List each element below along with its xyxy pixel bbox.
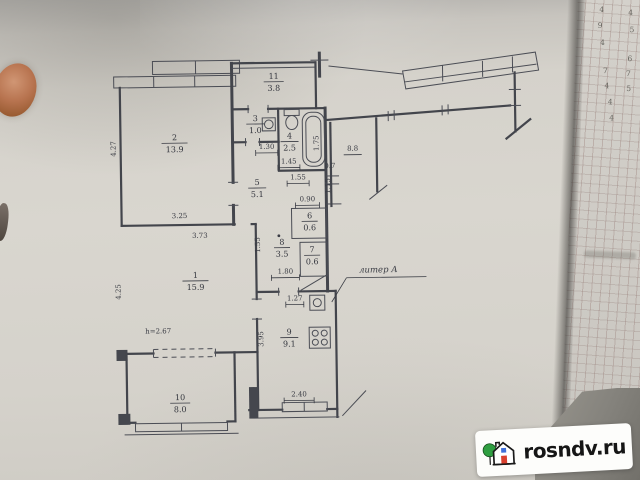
dimension-label: 2.40: [291, 390, 307, 398]
dimension-label: 1.27: [287, 294, 303, 302]
grid-digit: 6: [627, 54, 632, 63]
room-area: 9.1: [283, 339, 296, 348]
dimension-label: 1.30: [259, 143, 275, 151]
room-number: 10: [175, 393, 185, 402]
dimension-label: 4.27: [110, 141, 118, 157]
photo-of-floor-plan: 213.9113.831.042.555.160.670.683.5115.99…: [0, 0, 640, 480]
dimension-label: 1.80: [278, 268, 294, 276]
watermark-brand: rosndv.ru: [523, 434, 627, 463]
room-number: 11: [268, 72, 278, 81]
kitchen-sink-icon: [310, 295, 325, 310]
room-number: 3: [253, 114, 258, 123]
room-area: 3.5: [276, 250, 289, 259]
dimension-label: 3.73: [192, 232, 208, 240]
handwriting-smudge: [584, 250, 636, 259]
dimension-label: 1.15: [324, 178, 332, 194]
walls: [112, 50, 543, 435]
plan-labels: 213.9113.831.042.555.160.670.683.5115.99…: [109, 70, 400, 415]
grid-digit: 7: [603, 66, 608, 75]
room-number: 7: [309, 245, 314, 254]
toilet-icon: [284, 109, 299, 129]
dimension-label: 3.95: [257, 331, 265, 347]
grid-digit: 4: [599, 5, 604, 14]
room-area: 3.8: [267, 84, 280, 93]
window-symbol: [114, 75, 236, 88]
liter-annotation: литер А: [359, 265, 398, 276]
dimension-label: 4.25: [115, 284, 123, 300]
dimension-label: 1.75: [312, 135, 320, 151]
room-number: 8: [279, 238, 284, 247]
room-number: 6: [307, 211, 312, 220]
room-area: 13.9: [166, 145, 184, 154]
room-area: 1.0: [249, 126, 262, 135]
balcony-outline: [402, 52, 538, 89]
dimension-label: 1.55: [290, 173, 306, 181]
room-area: 15.9: [187, 283, 205, 292]
grid-digit: 4: [600, 38, 605, 47]
grid-digit: 4: [604, 81, 609, 90]
room-number: 4: [287, 132, 292, 141]
stove-icon: [309, 327, 330, 348]
house-logo-icon: [481, 435, 518, 471]
floor-plan-drawing: 213.9113.831.042.555.160.670.683.5115.99…: [97, 43, 563, 449]
grid-digit: 4: [609, 113, 614, 122]
grid-digit: 9: [598, 21, 603, 30]
liter-leader-line: [331, 277, 426, 302]
dimension-label: 0.7: [324, 162, 335, 170]
grid-digit: 7: [626, 69, 631, 78]
room-area: 2.5: [283, 143, 296, 152]
dimension-label: 0.90: [299, 195, 315, 203]
room-area: 0.6: [303, 223, 316, 232]
room-number: 5: [254, 178, 259, 187]
dimension-label: 1.45: [281, 157, 297, 165]
grid-digit: 5: [626, 84, 631, 93]
door-swing: [300, 275, 326, 290]
grid-digit: 4: [628, 8, 633, 17]
watermark-logo: rosndv.ru: [475, 423, 633, 477]
grid-digit: 5: [629, 25, 634, 34]
room-number: 2: [172, 133, 177, 142]
room-number: 1: [193, 271, 198, 280]
room-number: 9: [287, 328, 292, 337]
house-door: [501, 456, 507, 465]
sink-icon: [262, 118, 275, 131]
room-area: 5.1: [251, 190, 264, 199]
house-window: [501, 448, 506, 453]
ceiling-height-label: h=2.67: [145, 327, 171, 335]
dimension-label: 1.55: [254, 237, 262, 253]
dimension-label: 3.25: [172, 212, 188, 220]
room-area: 0.6: [306, 257, 319, 266]
neighbor-area-label: 8.8: [347, 145, 358, 153]
grid-digit: 4: [608, 97, 613, 106]
room-area: 8.0: [174, 405, 187, 414]
